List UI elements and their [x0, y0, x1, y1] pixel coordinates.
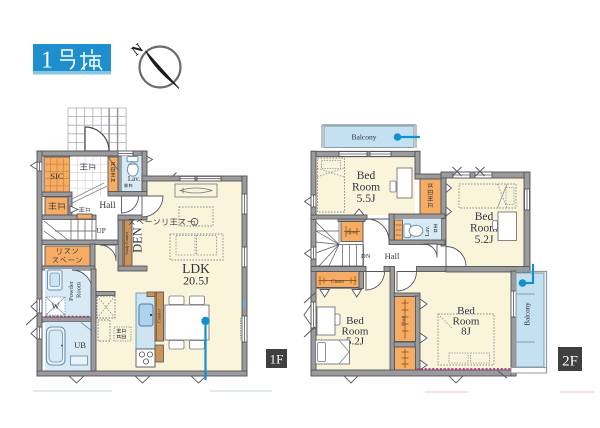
svg-text:SIC: SIC — [50, 171, 64, 181]
svg-text:UB: UB — [74, 340, 86, 350]
svg-text:2F: 2F — [562, 354, 578, 370]
svg-text:Counter: Counter — [156, 308, 161, 323]
svg-text:W: W — [52, 302, 60, 311]
svg-text:DEN: DEN — [131, 227, 145, 253]
svg-text:8J: 8J — [461, 326, 472, 338]
svg-text:Closet: Closet — [331, 280, 344, 285]
svg-text:Lav.: Lav. — [425, 225, 431, 236]
svg-text:Closet: Closet — [401, 315, 406, 326]
svg-text:20.5J: 20.5J — [183, 274, 209, 288]
svg-text:Room: Room — [352, 182, 380, 194]
svg-text:1: 1 — [41, 48, 53, 74]
svg-text:1: 1 — [193, 220, 196, 226]
svg-text:UP: UP — [96, 226, 106, 235]
svg-text:Study Counter: Study Counter — [124, 231, 129, 255]
svg-text:5.2J: 5.2J — [475, 234, 494, 246]
svg-text:Hall: Hall — [99, 201, 116, 211]
svg-text:Lav.: Lav. — [128, 175, 140, 183]
svg-text:Balcony: Balcony — [352, 133, 377, 142]
svg-text:Powder: Powder — [68, 280, 75, 301]
svg-text:1F: 1F — [270, 352, 284, 367]
svg-text:Hall: Hall — [385, 251, 400, 261]
svg-text:Bed: Bed — [475, 211, 494, 223]
svg-text:5.5J: 5.5J — [357, 193, 376, 205]
svg-text:Room: Room — [76, 282, 83, 298]
svg-text:Balcony: Balcony — [524, 302, 532, 326]
svg-text:Closet: Closet — [347, 230, 359, 235]
svg-text:Bed: Bed — [357, 170, 376, 182]
svg-text:DN: DN — [361, 253, 371, 260]
